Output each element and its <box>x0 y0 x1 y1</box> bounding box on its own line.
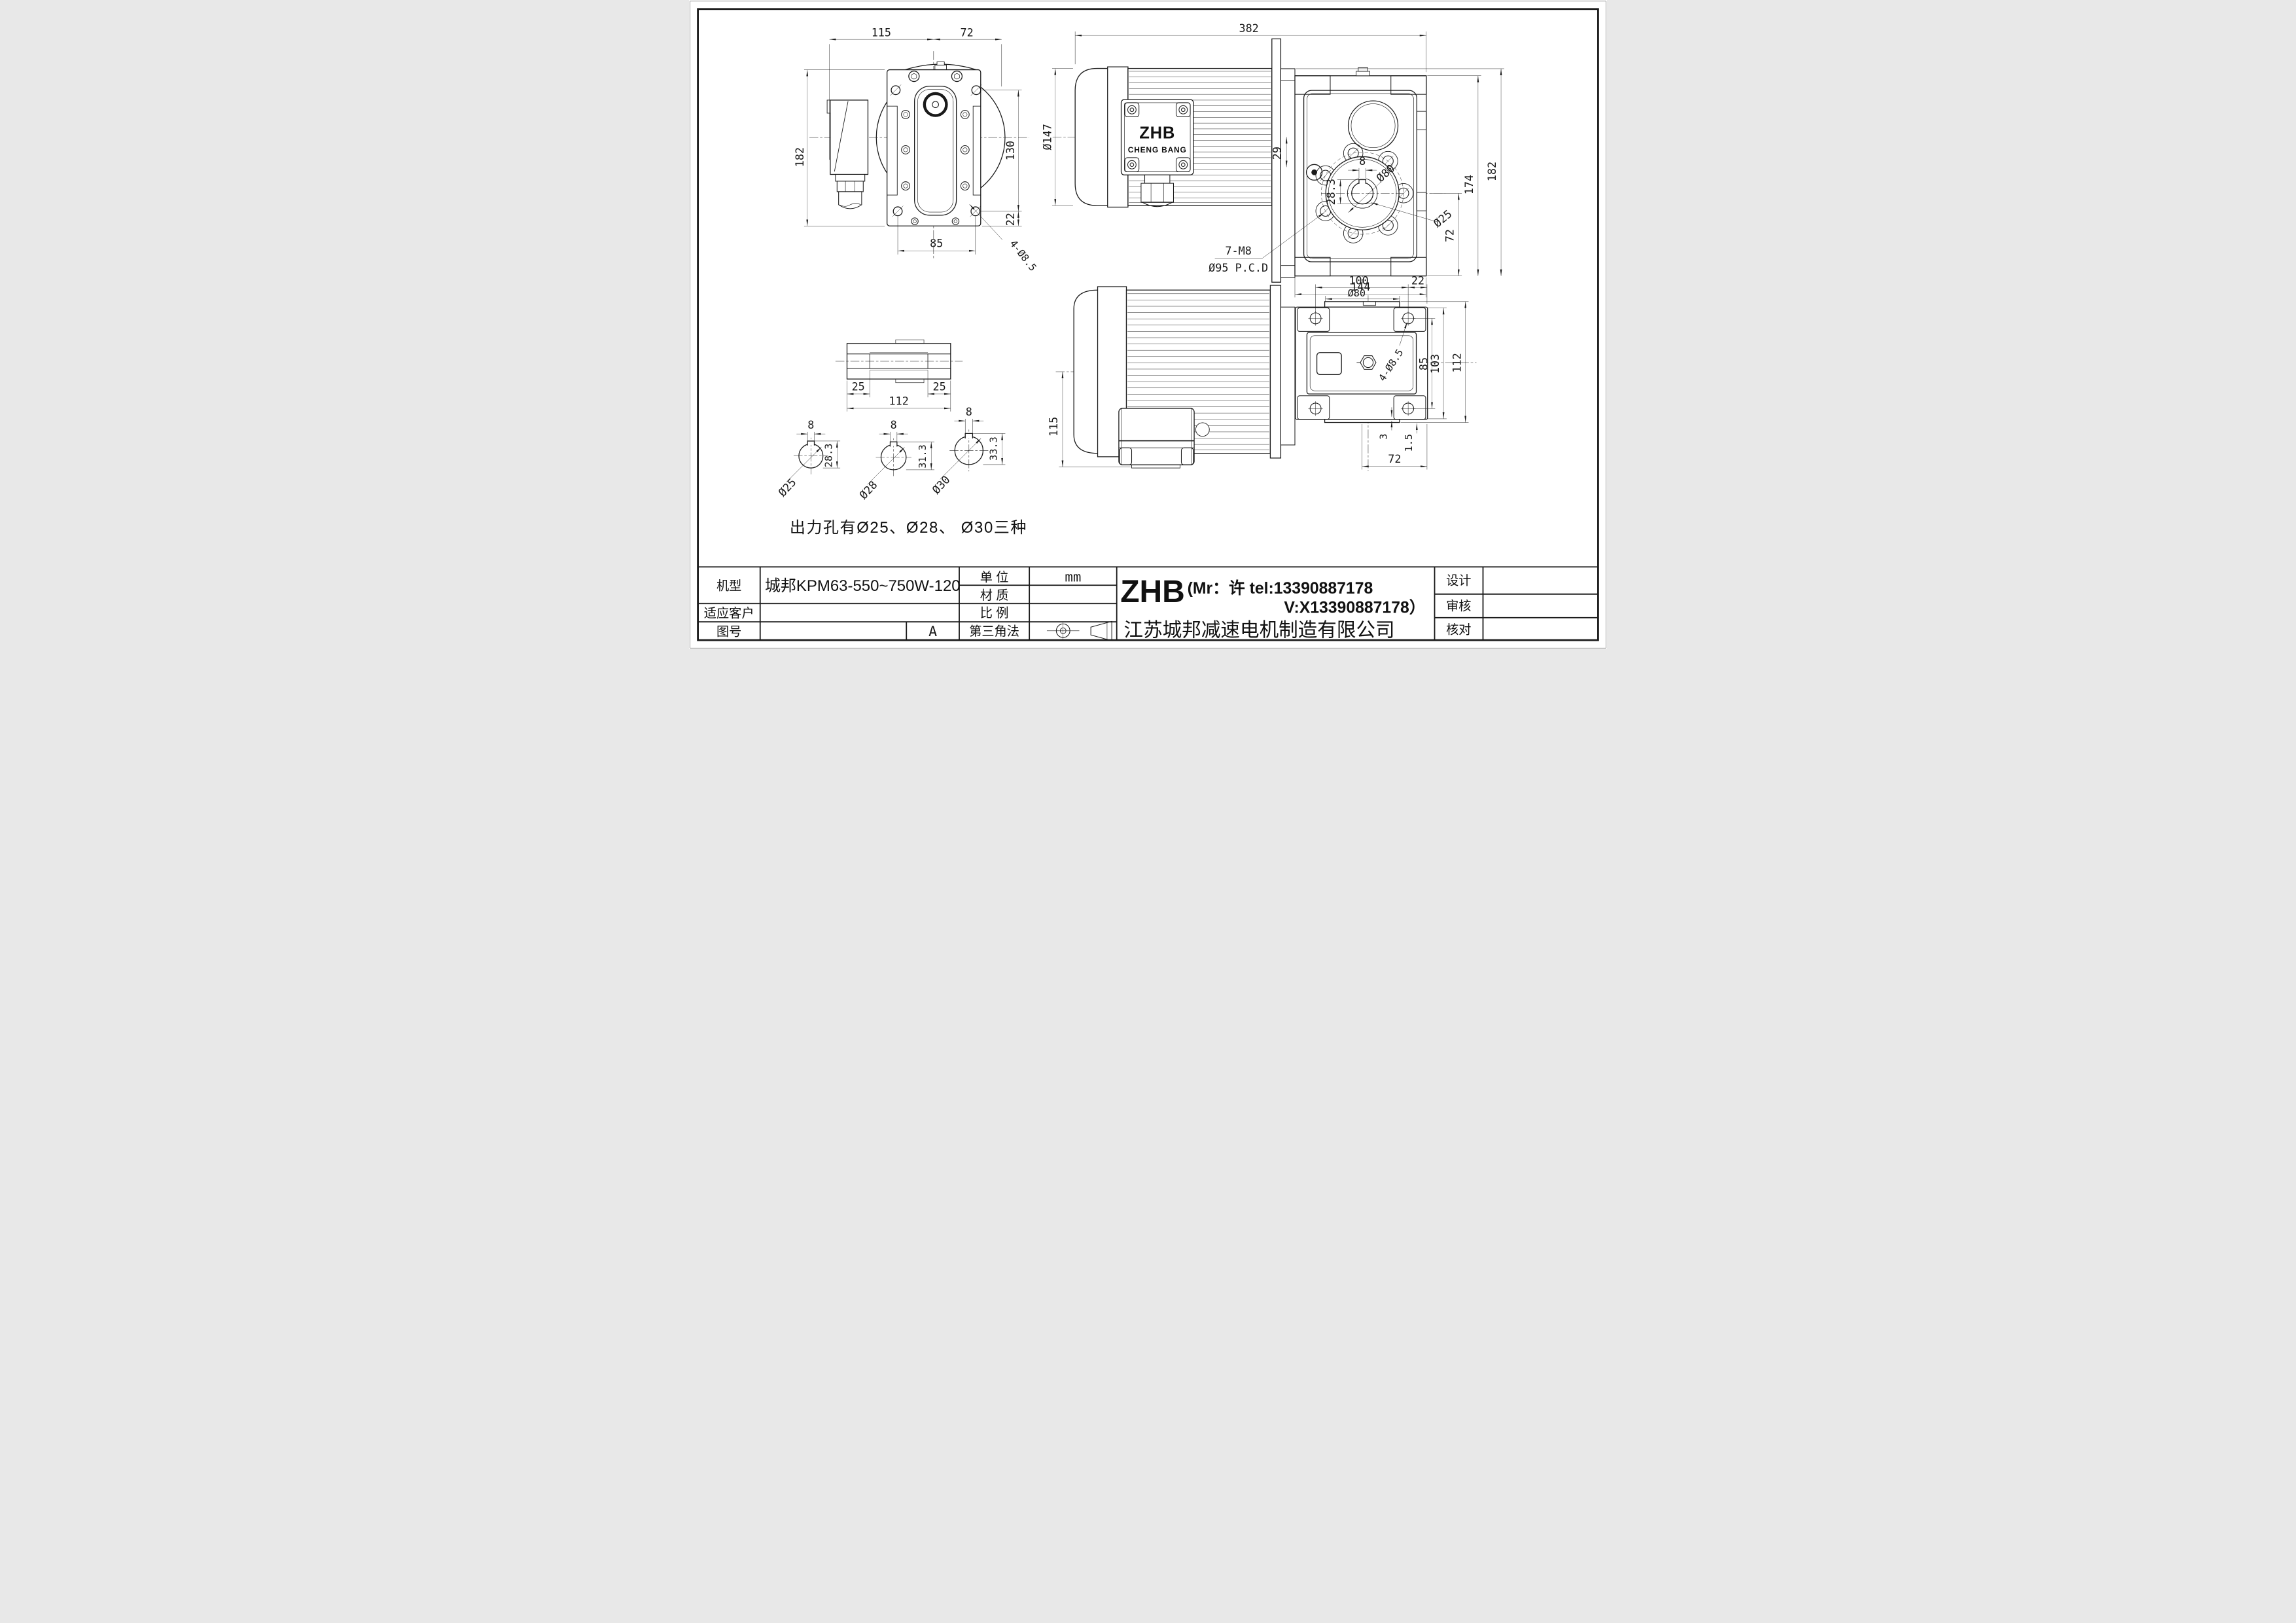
bore-circle-d28: 8 31.3 Ø28 <box>857 418 934 501</box>
company-contact-1: (Mr：许 tel:13390887178 <box>1188 579 1373 597</box>
dim-100-plan: 100 <box>1349 274 1368 287</box>
shaft-dimensions: 25 25 112 <box>847 370 950 412</box>
plan-view: 115 100 22 Ø80 4-Ø8.5 85 103 112 <box>1047 274 1477 471</box>
side-view: ZHB CHENG BANG <box>1040 22 1504 297</box>
dim-key8-b1: 8 <box>807 418 814 431</box>
front-mounting-plate <box>887 70 982 226</box>
dim-85-front: 85 <box>930 237 943 250</box>
dim-283-b1: 28.3 <box>822 444 834 468</box>
projection-label: 第三角法 <box>969 624 1019 639</box>
dim-313-b2: 31.3 <box>917 444 928 469</box>
dim-382: 382 <box>1239 22 1258 35</box>
label-d25: Ø25 <box>775 476 798 499</box>
bore-circle-d25: 8 28.3 Ø25 <box>775 418 840 499</box>
dim-72-plan: 72 <box>1388 452 1401 465</box>
material-label: 材 质 <box>980 588 1009 603</box>
dim-115-plan: 115 <box>1047 417 1060 437</box>
check-label: 核对 <box>1446 623 1471 637</box>
unit-value: mm <box>1065 569 1081 585</box>
customer-label: 适应客户 <box>704 606 754 620</box>
dim-d147: Ø147 <box>1040 124 1053 150</box>
side-gearbox <box>1295 67 1426 276</box>
company-contact-2: V:X13390887178） <box>1284 598 1425 617</box>
plan-motor <box>1074 285 1295 468</box>
dim-103-plan: 103 <box>1428 354 1441 374</box>
design-label: 设计 <box>1446 573 1471 588</box>
shaft-section-view: 25 25 112 <box>836 340 963 412</box>
dim-85-plan: 85 <box>1417 357 1430 370</box>
scale-label: 比 例 <box>980 606 1009 620</box>
dim-3-plan: 3 <box>1378 434 1390 440</box>
dim-d25-side: Ø25 <box>1431 207 1455 230</box>
dim-15-plan: 1.5 <box>1403 434 1415 452</box>
title-block: 机型 城邦KPM63-550~750W-120 适应客户 图号 A 单 位 mm… <box>698 567 1598 641</box>
label-d30: Ø30 <box>929 473 952 497</box>
bore-options: 8 28.3 Ø25 8 31.3 Ø28 <box>775 405 1005 501</box>
dim-333-b3: 33.3 <box>988 437 1000 461</box>
dim-182-side: 182 <box>1485 162 1498 181</box>
label-d28: Ø28 <box>857 478 879 502</box>
review-label: 审核 <box>1446 599 1471 614</box>
dim-174: 174 <box>1462 175 1475 194</box>
dim-key8-side: 8 <box>1359 154 1366 168</box>
dim-4xd85-front: 4-Ø8.5 <box>1008 238 1039 273</box>
model-value: 城邦KPM63-550~750W-120 <box>765 577 961 595</box>
dim-key8-b2: 8 <box>891 418 897 431</box>
unit-label: 单 位 <box>980 571 1009 585</box>
flange-note-pcd: Ø95 P.C.D <box>1209 261 1268 274</box>
dim-72-front: 72 <box>961 26 974 39</box>
company-logo: ZHB <box>1120 575 1185 609</box>
drawing-sheet: 115 72 182 130 22 85 4-Ø8.5 <box>689 0 1607 649</box>
company-name: 江苏城邦减速电机制造有限公司 <box>1124 620 1395 641</box>
dim-22-front: 22 <box>1004 213 1017 226</box>
third-angle-symbol <box>1047 621 1112 641</box>
plan-gearbox <box>1296 302 1428 423</box>
dim-d80-plan: Ø80 <box>1348 287 1366 299</box>
dim-283-side: 28.3 <box>1324 179 1337 205</box>
side-box-sub: CHENG BANG <box>1128 145 1187 154</box>
drawing-no-label: 图号 <box>716 625 741 639</box>
bore-circle-d30: 8 33.3 Ø30 <box>929 405 1005 496</box>
front-terminal-box <box>827 100 868 209</box>
dim-115-front: 115 <box>872 26 891 39</box>
revision-value: A <box>928 624 937 640</box>
dim-130-front: 130 <box>1004 141 1017 160</box>
flange-note-7m8: 7-M8 <box>1225 244 1251 257</box>
output-bore-note: 出力孔有Ø25、Ø28、 Ø30三种 <box>790 519 1027 537</box>
dim-25-left: 25 <box>852 380 865 393</box>
side-motor: ZHB CHENG BANG <box>1075 39 1295 282</box>
dim-29: 29 <box>1270 147 1283 160</box>
dim-112-plan: 112 <box>1450 353 1463 372</box>
dim-182-front: 182 <box>793 147 806 167</box>
front-view: 115 72 182 130 22 85 4-Ø8.5 <box>793 26 1038 273</box>
dim-22-plan: 22 <box>1411 274 1424 287</box>
model-label: 机型 <box>716 579 741 593</box>
dim-25-right: 25 <box>933 380 946 393</box>
dim-key8-b3: 8 <box>966 405 972 418</box>
side-box-brand: ZHB <box>1139 124 1175 142</box>
dim-72-side: 72 <box>1443 229 1456 242</box>
dim-112-shaft: 112 <box>889 395 909 408</box>
engineering-drawing: 115 72 182 130 22 85 4-Ø8.5 <box>689 0 1607 649</box>
